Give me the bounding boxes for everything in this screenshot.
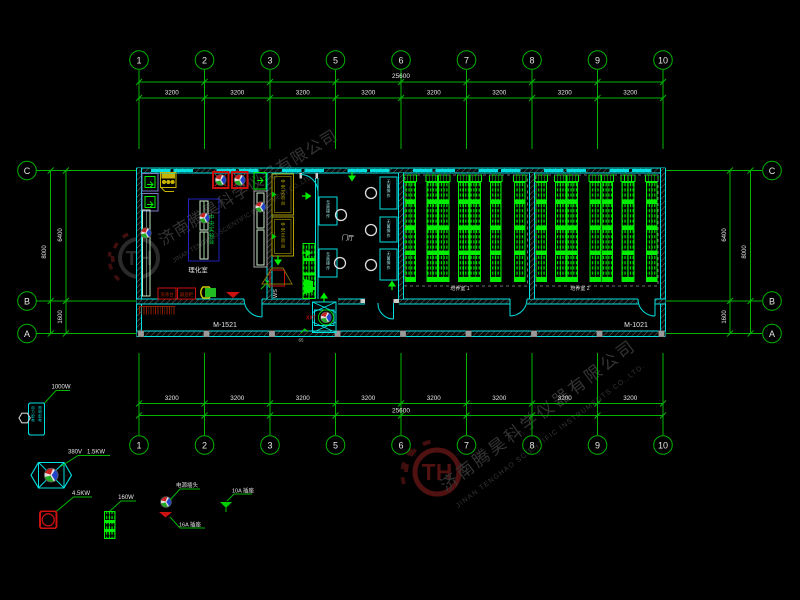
svg-text:B: B bbox=[24, 297, 30, 307]
svg-text:3200: 3200 bbox=[230, 395, 245, 402]
svg-text:6: 6 bbox=[398, 56, 403, 66]
svg-text:8: 8 bbox=[529, 56, 534, 66]
svg-text:C: C bbox=[24, 166, 31, 176]
svg-text:6: 6 bbox=[398, 441, 403, 451]
svg-text:无: 无 bbox=[387, 220, 391, 224]
svg-text:3200: 3200 bbox=[361, 395, 376, 402]
svg-text:1600: 1600 bbox=[722, 310, 728, 324]
svg-text:央: 央 bbox=[209, 219, 215, 227]
svg-text:4.5KW: 4.5KW bbox=[72, 491, 90, 497]
svg-text:3200: 3200 bbox=[623, 395, 638, 402]
svg-text:7: 7 bbox=[464, 441, 469, 451]
svg-text:3200: 3200 bbox=[427, 395, 442, 402]
svg-text:9: 9 bbox=[595, 56, 600, 66]
svg-text:菌: 菌 bbox=[326, 256, 330, 261]
svg-text:3200: 3200 bbox=[230, 90, 245, 97]
svg-text:1600: 1600 bbox=[58, 310, 64, 324]
svg-text:65: 65 bbox=[298, 338, 304, 343]
svg-text:25600: 25600 bbox=[392, 73, 410, 80]
svg-text:XXT: XXT bbox=[306, 316, 316, 322]
svg-text:3200: 3200 bbox=[165, 90, 180, 97]
svg-text:1: 1 bbox=[136, 441, 141, 451]
svg-text:25600: 25600 bbox=[392, 408, 410, 415]
svg-text:3: 3 bbox=[267, 441, 272, 451]
svg-text:中: 中 bbox=[209, 213, 215, 221]
svg-text:6400: 6400 bbox=[58, 228, 64, 242]
svg-text:M-1521: M-1521 bbox=[213, 322, 237, 329]
svg-text:作: 作 bbox=[387, 233, 391, 238]
svg-text:9: 9 bbox=[595, 441, 600, 451]
svg-text:2: 2 bbox=[202, 441, 207, 451]
svg-text:菌: 菌 bbox=[387, 224, 391, 229]
svg-text:门厅: 门厅 bbox=[342, 234, 354, 242]
svg-text:3200: 3200 bbox=[492, 395, 507, 402]
svg-text:作: 作 bbox=[387, 265, 391, 270]
svg-text:电源插头: 电源插头 bbox=[176, 481, 199, 489]
svg-text:菌: 菌 bbox=[387, 256, 391, 261]
svg-text:WS: WS bbox=[273, 289, 279, 298]
svg-text:培养室 2: 培养室 2 bbox=[570, 285, 589, 292]
svg-text:理化室: 理化室 bbox=[188, 265, 208, 274]
svg-text:B: B bbox=[769, 297, 775, 307]
svg-text:无: 无 bbox=[387, 252, 391, 256]
svg-text:台: 台 bbox=[281, 243, 286, 250]
svg-text:无: 无 bbox=[326, 201, 330, 205]
svg-text:验: 验 bbox=[209, 232, 215, 240]
svg-text:菌: 菌 bbox=[387, 184, 391, 189]
svg-text:1.5KW: 1.5KW bbox=[87, 450, 105, 456]
svg-text:3200: 3200 bbox=[558, 90, 573, 97]
svg-text:8000: 8000 bbox=[742, 245, 748, 259]
svg-text:1000W: 1000W bbox=[51, 385, 70, 391]
svg-text:M-1021: M-1021 bbox=[624, 322, 648, 329]
svg-text:3200: 3200 bbox=[427, 90, 442, 97]
svg-text:380V: 380V bbox=[68, 450, 82, 456]
svg-text:洗涤台: 洗涤台 bbox=[160, 291, 174, 298]
svg-text:A: A bbox=[769, 329, 775, 339]
svg-text:器皿柜: 器皿柜 bbox=[180, 291, 194, 298]
svg-text:菌: 菌 bbox=[326, 204, 330, 209]
svg-text:3200: 3200 bbox=[296, 395, 311, 402]
svg-text:作: 作 bbox=[387, 193, 391, 198]
svg-text:3: 3 bbox=[267, 56, 272, 66]
svg-text:5: 5 bbox=[333, 441, 338, 451]
svg-text:操: 操 bbox=[387, 228, 391, 233]
svg-text:10: 10 bbox=[658, 441, 668, 451]
svg-text:10A 插座: 10A 插座 bbox=[232, 487, 255, 495]
svg-text:操: 操 bbox=[387, 188, 391, 193]
svg-text:3200: 3200 bbox=[296, 90, 311, 97]
svg-text:无: 无 bbox=[326, 253, 330, 257]
svg-text:10: 10 bbox=[658, 56, 668, 66]
svg-text:台: 台 bbox=[209, 238, 215, 246]
svg-text:3200: 3200 bbox=[165, 395, 180, 402]
svg-text:5: 5 bbox=[333, 56, 338, 66]
svg-text:3200: 3200 bbox=[492, 90, 507, 97]
svg-text:3200: 3200 bbox=[623, 90, 638, 97]
svg-text:2: 2 bbox=[202, 56, 207, 66]
svg-text:1: 1 bbox=[136, 56, 141, 66]
svg-text:16A 插座: 16A 插座 bbox=[179, 521, 202, 529]
svg-text:作: 作 bbox=[326, 213, 330, 218]
svg-text:实: 实 bbox=[209, 226, 215, 234]
svg-text:160W: 160W bbox=[118, 495, 134, 501]
svg-text:操: 操 bbox=[326, 261, 330, 266]
svg-text:8: 8 bbox=[529, 441, 534, 451]
svg-text:8000: 8000 bbox=[42, 245, 48, 259]
svg-text:培养室 1: 培养室 1 bbox=[450, 285, 469, 292]
svg-text:7: 7 bbox=[464, 56, 469, 66]
svg-text:台: 台 bbox=[281, 200, 286, 207]
svg-text:C: C bbox=[769, 166, 776, 176]
svg-text:作: 作 bbox=[326, 265, 330, 270]
svg-text:6400: 6400 bbox=[722, 228, 728, 242]
svg-text:3200: 3200 bbox=[558, 395, 573, 402]
svg-text:无: 无 bbox=[387, 180, 391, 184]
svg-text:A: A bbox=[24, 329, 30, 339]
svg-text:操: 操 bbox=[387, 260, 391, 265]
svg-text:操: 操 bbox=[326, 209, 330, 214]
svg-text:3200: 3200 bbox=[361, 90, 376, 97]
